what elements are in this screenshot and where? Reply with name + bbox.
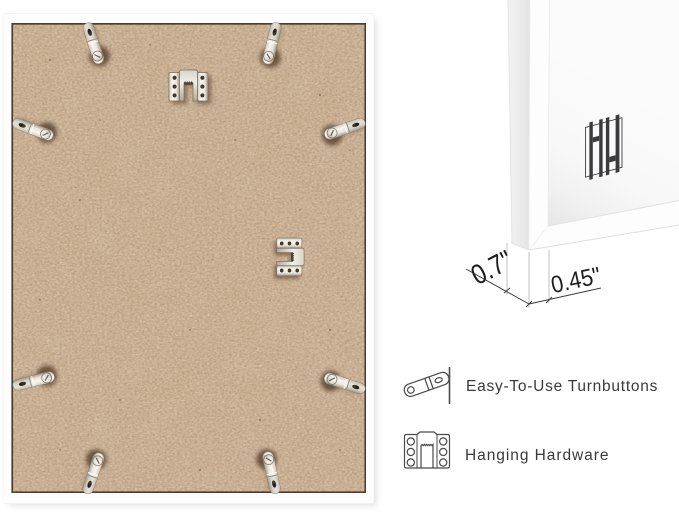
svg-text:Hanging Hardware: Hanging Hardware xyxy=(465,447,609,464)
svg-text:Easy-To-Use Turnbuttons: Easy-To-Use Turnbuttons xyxy=(466,378,658,395)
